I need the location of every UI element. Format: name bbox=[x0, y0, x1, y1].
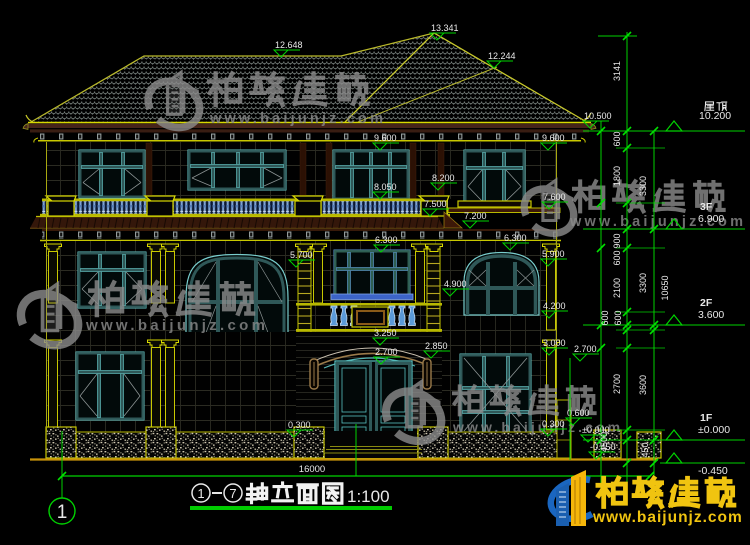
svg-text:www.baijunjz.com: www.baijunjz.com bbox=[209, 111, 386, 127]
svg-text:12.244: 12.244 bbox=[488, 51, 516, 61]
svg-text:4.900: 4.900 bbox=[444, 279, 467, 289]
svg-text:www.baijunjz.com: www.baijunjz.com bbox=[592, 509, 743, 526]
svg-text:900: 900 bbox=[612, 233, 622, 248]
svg-text:12.648: 12.648 bbox=[275, 40, 303, 50]
svg-text:3.600: 3.600 bbox=[698, 309, 724, 321]
svg-text:1: 1 bbox=[197, 486, 204, 501]
svg-text:3F: 3F bbox=[700, 201, 713, 213]
svg-text:www.baijunjz.com: www.baijunjz.com bbox=[85, 317, 268, 334]
svg-text:2100: 2100 bbox=[612, 278, 622, 298]
svg-text:3600: 3600 bbox=[638, 375, 648, 395]
svg-text:13.341: 13.341 bbox=[431, 23, 459, 33]
svg-text:3.250: 3.250 bbox=[374, 328, 397, 338]
svg-text:7.500: 7.500 bbox=[424, 199, 447, 209]
svg-text:6.300: 6.300 bbox=[504, 233, 527, 243]
svg-text:4.200: 4.200 bbox=[543, 301, 566, 311]
svg-text:6.900: 6.900 bbox=[698, 213, 724, 225]
svg-text:±0.000: ±0.000 bbox=[698, 424, 730, 436]
svg-text:0.300: 0.300 bbox=[288, 420, 311, 430]
svg-text:16000: 16000 bbox=[299, 464, 325, 475]
svg-text:600: 600 bbox=[613, 310, 623, 325]
svg-text:1F: 1F bbox=[700, 412, 713, 424]
svg-text:10650: 10650 bbox=[660, 275, 670, 300]
svg-text:8.050: 8.050 bbox=[374, 182, 397, 192]
svg-text:6.300: 6.300 bbox=[375, 235, 398, 245]
svg-text:3.000: 3.000 bbox=[543, 338, 566, 348]
svg-text:7.200: 7.200 bbox=[464, 211, 487, 221]
svg-text:3300: 3300 bbox=[638, 176, 648, 196]
svg-text:600: 600 bbox=[612, 250, 622, 265]
svg-text:3141: 3141 bbox=[612, 61, 622, 81]
svg-text:9.600: 9.600 bbox=[374, 133, 397, 143]
svg-text:10.500: 10.500 bbox=[584, 111, 612, 121]
svg-text:4500: 4500 bbox=[599, 432, 609, 452]
svg-text:3300: 3300 bbox=[638, 273, 648, 293]
svg-text:9.600: 9.600 bbox=[542, 133, 565, 143]
svg-text:2.700: 2.700 bbox=[375, 347, 398, 357]
svg-text:2.850: 2.850 bbox=[425, 341, 448, 351]
svg-text:1:100: 1:100 bbox=[347, 487, 390, 506]
svg-text:1: 1 bbox=[57, 502, 68, 523]
svg-text:600: 600 bbox=[600, 310, 610, 325]
svg-text:5.900: 5.900 bbox=[542, 249, 565, 259]
svg-text:450: 450 bbox=[640, 442, 650, 457]
svg-text:600: 600 bbox=[612, 131, 622, 146]
svg-text:8.200: 8.200 bbox=[432, 173, 455, 183]
svg-text:1800: 1800 bbox=[612, 166, 622, 186]
svg-text:-0.450: -0.450 bbox=[698, 465, 728, 477]
svg-text:2700: 2700 bbox=[612, 374, 622, 394]
svg-text:10.200: 10.200 bbox=[699, 110, 731, 122]
svg-text:2F: 2F bbox=[700, 297, 713, 309]
svg-text:7.600: 7.600 bbox=[543, 192, 566, 202]
svg-text:2.700: 2.700 bbox=[574, 344, 597, 354]
svg-text:5.700: 5.700 bbox=[290, 250, 313, 260]
svg-text:0.300: 0.300 bbox=[542, 419, 565, 429]
svg-text:7: 7 bbox=[229, 486, 236, 501]
